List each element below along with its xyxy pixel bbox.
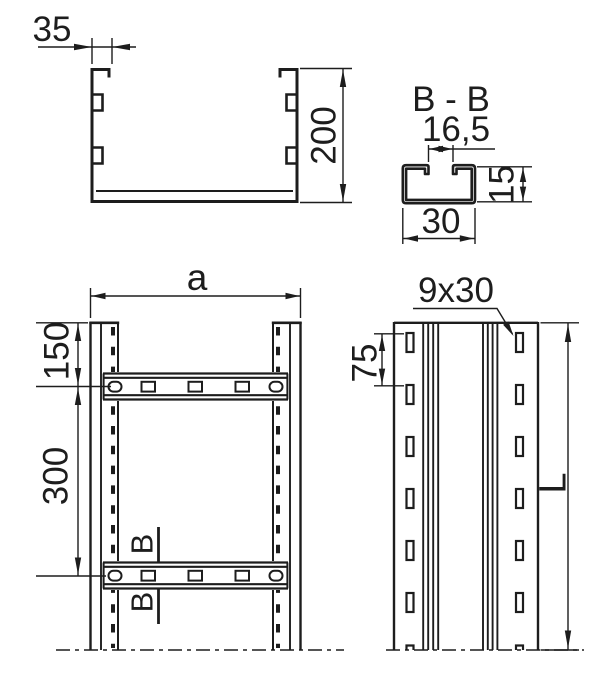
- slot-column-left: [407, 333, 414, 650]
- dim-end-to-first-rung: 150: [38, 322, 77, 380]
- view-side: 9x30 75 L: [346, 271, 585, 650]
- dim-overall-width: a: [187, 257, 208, 298]
- view-plan: a: [36, 257, 344, 650]
- dim-slot-pitch: 75: [346, 344, 385, 383]
- dim-flange-width: 35: [33, 10, 72, 49]
- dim-slot-size: 9x30: [418, 271, 494, 310]
- dim-rung-pitch: 300: [37, 447, 76, 505]
- slot-column-right: [516, 333, 523, 650]
- cut-label-top: B: [125, 534, 160, 555]
- rung-2: [103, 561, 288, 590]
- technical-drawing-page: 35 200 B - B 16,5 15 30 a: [0, 0, 615, 683]
- dim-profile-height: 15: [483, 165, 522, 204]
- dim-profile-width: 30: [422, 202, 461, 241]
- rung-1: [103, 372, 288, 401]
- view-section-bb: B - B 16,5 15 30: [403, 80, 532, 244]
- view-cross-section: 35 200: [33, 10, 352, 203]
- dim-opening-width: 16,5: [422, 110, 490, 149]
- cable-ladder-drawing: 35 200 B - B 16,5 15 30 a: [0, 0, 615, 683]
- cut-label-bottom: B: [125, 592, 160, 613]
- dim-length: L: [533, 472, 575, 493]
- dim-section-height: 200: [305, 106, 344, 164]
